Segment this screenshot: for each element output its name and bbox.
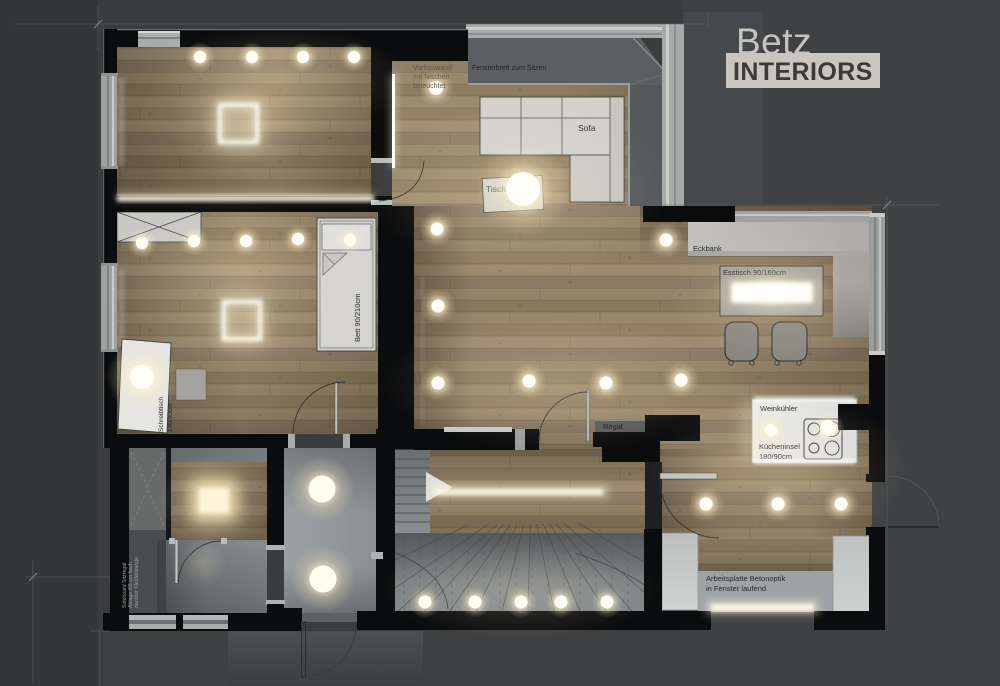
svg-text:INTERIORS: INTERIORS (733, 58, 873, 86)
svg-text:Fensterbrett zum Sitzen: Fensterbrett zum Sitzen (472, 65, 546, 72)
svg-text:Vorbauwand: Vorbauwand (413, 65, 452, 72)
svg-text:140/90cm: 140/90cm (167, 403, 174, 432)
svg-text:darüber Kleiderstange: darüber Kleiderstange (134, 557, 140, 608)
svg-text:Arbeitsplatte Betonoptik: Arbeitsplatte Betonoptik (706, 574, 785, 583)
svg-text:in Fenster laufend: in Fenster laufend (706, 584, 766, 593)
svg-text:mit Nischen: mit Nischen (413, 74, 450, 81)
svg-text:beleuchtet: beleuchtet (413, 83, 445, 90)
